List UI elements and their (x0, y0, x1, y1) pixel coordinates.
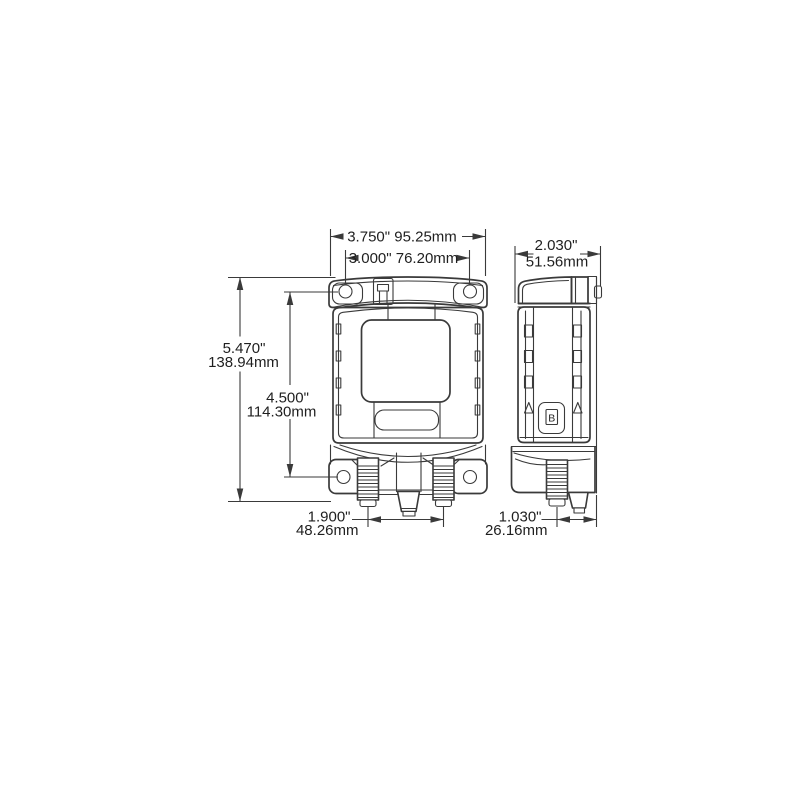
dim-text-front-overall-width: 3.750" 95.25mm (347, 229, 457, 246)
label-window (362, 320, 451, 402)
front-view (329, 277, 487, 516)
side-view: B (512, 277, 602, 514)
terminal-stud-left (358, 458, 379, 507)
center-tab (398, 492, 420, 517)
dim-text-front-hole-spacing-v-mm: 114.30mm (247, 404, 317, 421)
dim-text-side-stud-offset-mm: 26.16mm (485, 522, 548, 539)
mounting-hole-bottom-right (464, 471, 477, 484)
front-ear-bottom-right (452, 460, 488, 494)
dim-text-side-depth-in: 2.030" (535, 237, 578, 254)
b-marking-plate: B (539, 403, 565, 434)
terminal-stud-right (433, 458, 454, 507)
dim-text-side-depth-mm: 51.56mm (526, 254, 589, 271)
b-marking-letter: B (548, 413, 555, 425)
dim-front-stud-spacing: 1.900" 48.26mm (296, 507, 444, 539)
terminal-stud-side (547, 460, 568, 506)
dimension-drawing: B 3.750" 95.25mm (0, 0, 800, 800)
mounting-hole-top-right (464, 285, 477, 298)
side-bottom-flange (512, 447, 597, 514)
mounting-hole-bottom-left (337, 471, 350, 484)
front-bottom-flange (329, 445, 487, 516)
dim-front-hole-spacing-h: 3.000" 76.20mm (346, 250, 470, 285)
mounting-hole-top-left (339, 285, 352, 298)
label-pill (375, 410, 439, 430)
side-clip-tab (595, 286, 602, 298)
dim-text-front-height-mm: 138.94mm (208, 354, 279, 371)
side-top-cap (518, 277, 602, 308)
dim-text-front-hole-spacing-h: 3.000" 76.20mm (349, 250, 459, 267)
side-back-plate-top (588, 277, 597, 304)
dim-text-front-stud-spacing-mm: 48.26mm (296, 522, 359, 539)
dim-front-hole-spacing-v: 4.500" 114.30mm (247, 292, 338, 477)
technical-drawing-page: B 3.750" 95.25mm (0, 0, 800, 800)
side-center-tab (569, 493, 589, 514)
front-ear-top-left (333, 283, 363, 304)
front-body (333, 303, 483, 443)
front-ear-top-right (454, 283, 484, 304)
